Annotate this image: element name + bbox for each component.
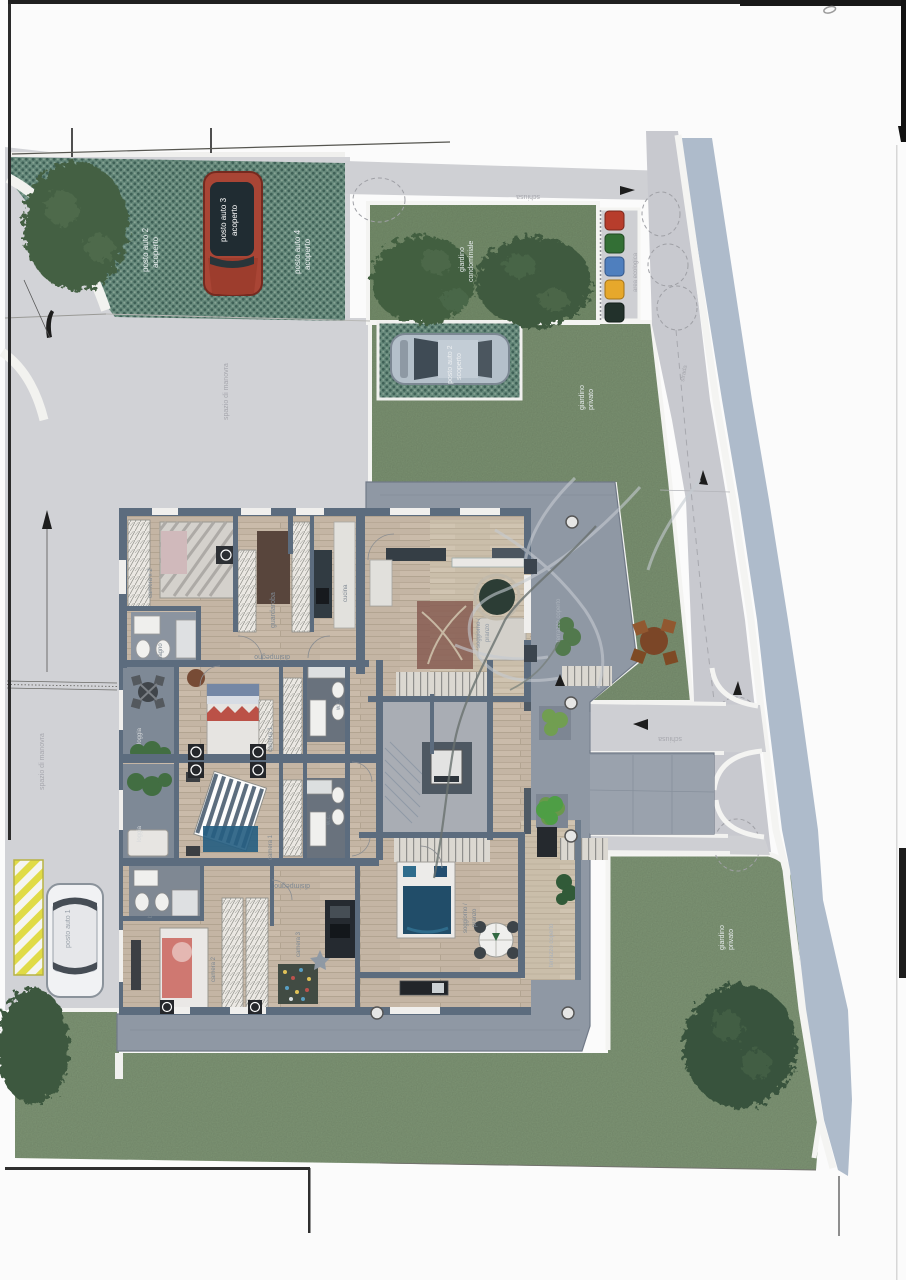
svg-text:privato: privato bbox=[728, 929, 735, 950]
svg-text:camera 2: camera 2 bbox=[211, 956, 217, 982]
svg-text:w.c.: w.c. bbox=[336, 699, 342, 711]
svg-text:pranzo: pranzo bbox=[472, 908, 478, 927]
svg-text:disimpegno: disimpegno bbox=[254, 653, 290, 660]
svg-text:schiusa: schiusa bbox=[658, 735, 682, 742]
svg-text:camera 1: camera 1 bbox=[268, 726, 274, 752]
svg-text:acoperto: acoperto bbox=[151, 236, 160, 268]
svg-text:pranzo: pranzo bbox=[485, 623, 491, 642]
svg-text:soggiorno /: soggiorno / bbox=[463, 903, 469, 933]
svg-text:bagno: bagno bbox=[148, 901, 154, 918]
svg-text:posto auto 3: posto auto 3 bbox=[219, 197, 228, 242]
svg-text:posto auto 1: posto auto 1 bbox=[65, 909, 72, 948]
svg-text:area ecologica: area ecologica bbox=[633, 252, 639, 292]
svg-text:camera x 2: camera x 2 bbox=[148, 568, 154, 598]
svg-text:w.c.: w.c. bbox=[326, 814, 332, 826]
svg-text:posto auto 4: posto auto 4 bbox=[293, 229, 302, 274]
svg-text:acoperto: acoperto bbox=[230, 204, 239, 236]
svg-text:giardino: giardino bbox=[459, 247, 466, 272]
svg-text:condominiale: condominiale bbox=[468, 241, 475, 282]
svg-text:privato: privato bbox=[588, 389, 595, 410]
svg-text:schiusa: schiusa bbox=[516, 193, 540, 200]
svg-text:guardaroba: guardaroba bbox=[270, 592, 277, 628]
svg-text:cucina: cucina bbox=[343, 584, 349, 602]
svg-text:disimpegno: disimpegno bbox=[274, 882, 310, 889]
svg-text:posto auto 2: posto auto 2 bbox=[447, 345, 454, 384]
svg-text:bagno: bagno bbox=[158, 643, 164, 660]
svg-text:loggia: loggia bbox=[137, 825, 143, 842]
svg-text:camera 1: camera 1 bbox=[268, 834, 274, 860]
svg-text:soggiorno /: soggiorno / bbox=[476, 618, 482, 648]
svg-text:spazio di manovra: spazio di manovra bbox=[223, 363, 230, 420]
svg-text:giardino: giardino bbox=[719, 925, 726, 950]
svg-text:scoperto: scoperto bbox=[456, 353, 463, 380]
svg-text:loggia: loggia bbox=[137, 727, 143, 744]
svg-text:posto auto 2: posto auto 2 bbox=[141, 227, 150, 272]
svg-text:giardino: giardino bbox=[579, 385, 586, 410]
svg-text:acoperto: acoperto bbox=[303, 238, 312, 270]
svg-text:camera 3: camera 3 bbox=[296, 931, 302, 957]
svg-text:spazio di manovra: spazio di manovra bbox=[39, 733, 46, 790]
svg-text:terrazzo coperto: terrazzo coperto bbox=[549, 923, 555, 967]
svg-text:terrazzo coperto: terrazzo coperto bbox=[556, 598, 562, 642]
